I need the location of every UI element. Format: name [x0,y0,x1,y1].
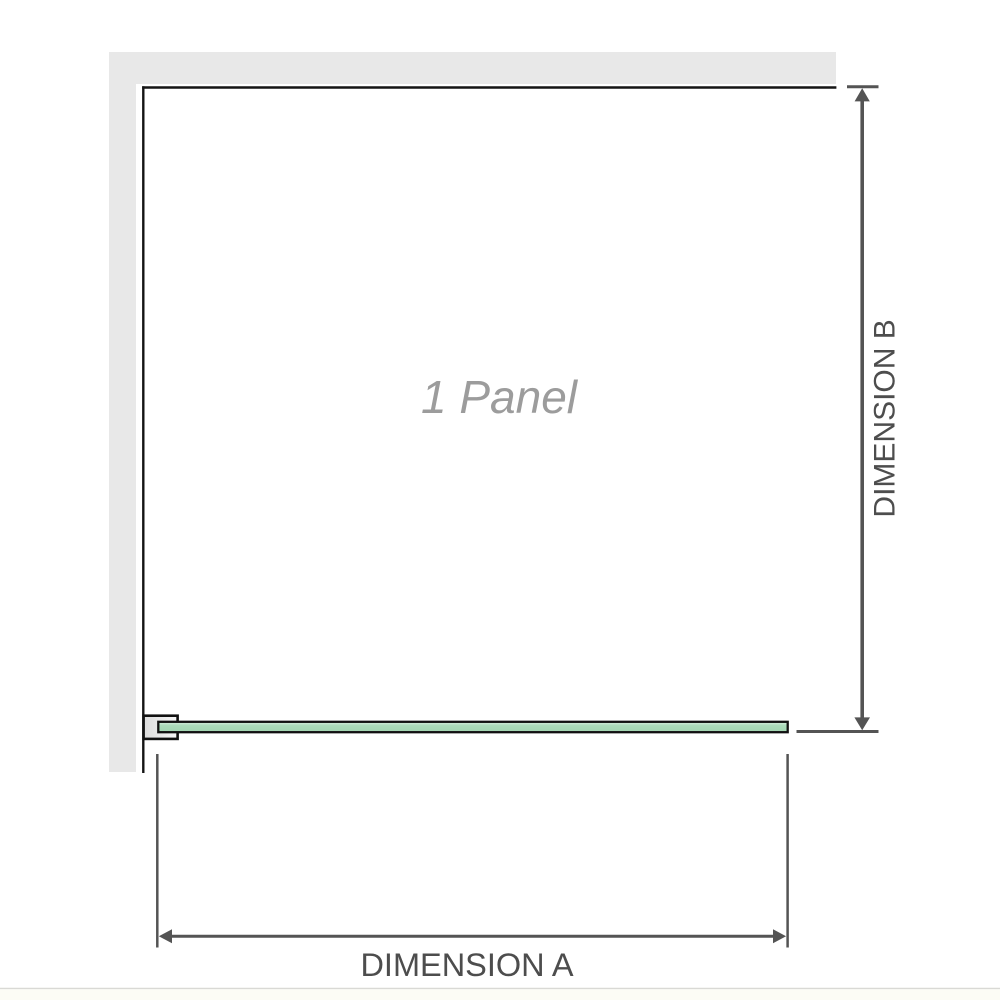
svg-text:DIMENSION A: DIMENSION A [360,947,573,983]
svg-text:1 Panel: 1 Panel [421,371,579,423]
svg-text:DIMENSION B: DIMENSION B [869,319,902,517]
